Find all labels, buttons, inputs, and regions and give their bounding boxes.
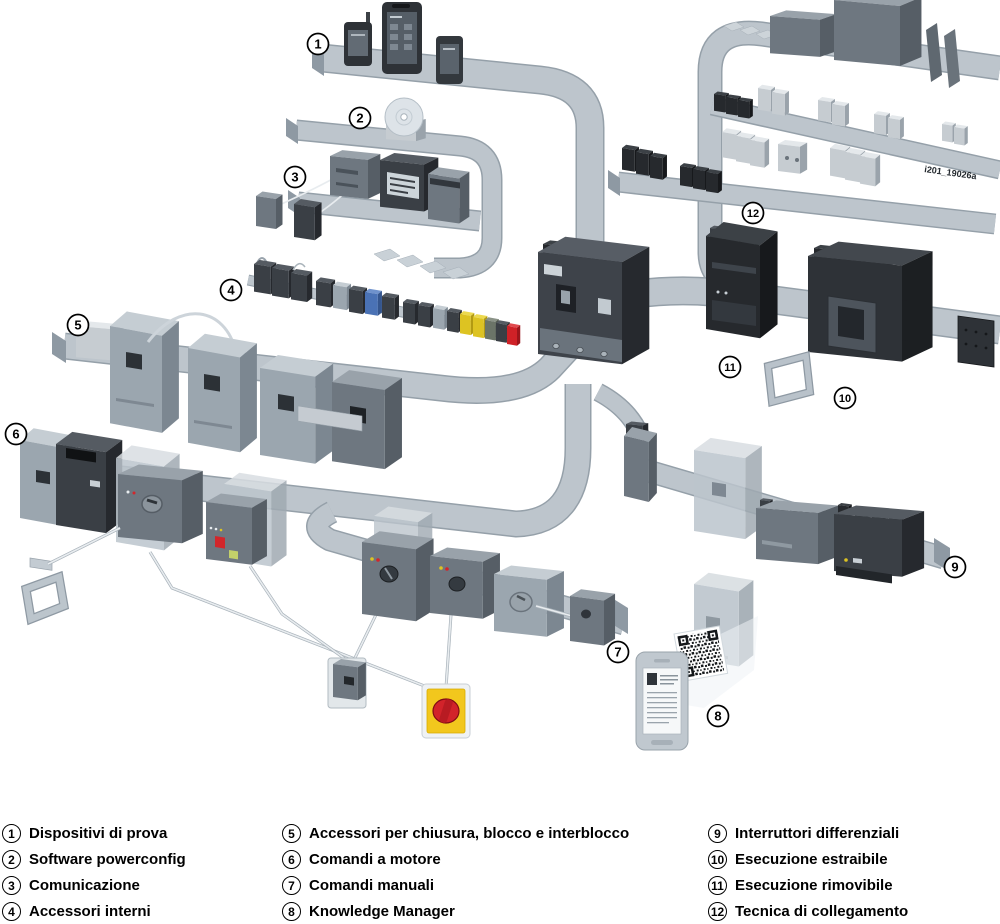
callout-6: 6	[6, 424, 27, 445]
svg-text:1: 1	[314, 37, 321, 52]
svg-text:7: 7	[614, 645, 621, 660]
legend-item-11: 11 Esecuzione rimovibile	[708, 876, 908, 895]
callout-12: 12	[743, 203, 764, 224]
legend-label: Accessori per chiusura, blocco e interbl…	[309, 825, 629, 842]
terminal-cover-large	[834, 0, 921, 66]
svg-text:11: 11	[724, 362, 736, 374]
com-module-small	[256, 192, 283, 230]
smartphone	[636, 652, 688, 750]
cluster-withdrawable-version	[768, 242, 994, 402]
rcd-module	[756, 500, 838, 564]
rcd-vertical-accessory	[624, 427, 657, 502]
isometric-diagram: 1 2 3 4 5 6 7 8 9 10 11 12 i201_19026a	[0, 0, 1000, 820]
cluster-powerconfig-disc	[385, 98, 426, 141]
breaker-with-lock	[188, 334, 257, 453]
legend-label: Comandi manuali	[309, 877, 434, 894]
breaker-with-lock	[110, 311, 179, 433]
ghost-breaker	[694, 438, 762, 539]
legend-number: 11	[708, 876, 727, 895]
legend-label: Esecuzione estraibile	[735, 851, 888, 868]
svg-text:12: 12	[747, 208, 759, 220]
svg-text:9: 9	[951, 560, 958, 575]
legend-item-10: 10 Esecuzione estraibile	[708, 850, 908, 869]
breaker-interlocked	[260, 355, 333, 464]
legend-item-7: 7 Comandi manuali	[282, 876, 629, 895]
legend-label: Tecnica di collegamento	[735, 903, 908, 920]
legend-label: Knowledge Manager	[309, 903, 455, 920]
lug-block	[778, 140, 807, 174]
legend-label: Comandi a motore	[309, 851, 441, 868]
legend-item-6: 6 Comandi a motore	[282, 850, 629, 869]
legend-number: 12	[708, 902, 727, 921]
com-module-small	[294, 199, 322, 240]
legend-number: 4	[2, 902, 21, 921]
svg-text:5: 5	[74, 318, 81, 333]
com-module-right	[428, 167, 469, 223]
phase-barrier	[926, 23, 942, 82]
main-circuit-breaker	[538, 237, 649, 365]
legend-label: Comunicazione	[29, 877, 140, 894]
cluster-plug-in-version	[706, 222, 778, 338]
svg-text:3: 3	[291, 170, 298, 185]
legend-column-3: 9 Interruttori differenziali 10 Esecuzio…	[708, 824, 908, 921]
rail-right-horizontal	[604, 291, 1000, 330]
legend-label: Interruttori differenziali	[735, 825, 899, 842]
svg-text:8: 8	[714, 709, 721, 724]
callout-10: 10	[835, 388, 856, 409]
callout-3: 3	[285, 167, 306, 188]
cluster-connection-technology	[622, 0, 968, 193]
callout-11: 11	[720, 357, 741, 378]
motor-operator	[56, 432, 122, 533]
legend-item-2: 2 Software powerconfig	[2, 850, 186, 869]
callout-9: 9	[945, 557, 966, 578]
callout-5: 5	[68, 315, 89, 336]
cluster-locking-accessories	[76, 311, 402, 469]
cluster-rcd	[624, 421, 924, 583]
door-handle-gray	[328, 658, 366, 708]
legend-number: 8	[282, 902, 301, 921]
svg-text:4: 4	[227, 283, 235, 298]
callout-1: 1	[308, 34, 329, 55]
rail-top-right-bottom-shelf	[618, 182, 995, 224]
cluster-knowledge-manager	[636, 573, 758, 750]
legend-label: Dispositivi di prova	[29, 825, 167, 842]
callout-2: 2	[350, 108, 371, 129]
door-coupling-operator	[570, 589, 615, 645]
legend-number: 7	[282, 876, 301, 895]
callout-7: 7	[608, 642, 629, 663]
legend-number: 9	[708, 824, 727, 843]
legend-number: 1	[2, 824, 21, 843]
callout-4: 4	[221, 280, 242, 301]
legend-label: Software powerconfig	[29, 851, 186, 868]
legend-column-2: 5 Accessori per chiusura, blocco e inter…	[282, 824, 629, 921]
legend-column-1: 1 Dispositivi di prova 2 Software powerc…	[2, 824, 186, 921]
legend-label: Accessori interni	[29, 903, 151, 920]
phase-barrier	[944, 29, 960, 88]
legend-item-8: 8 Knowledge Manager	[282, 902, 629, 921]
legend-number: 2	[2, 850, 21, 869]
legend-item-5: 5 Accessori per chiusura, blocco e inter…	[282, 824, 629, 843]
mounting-plate	[958, 316, 994, 367]
svg-text:10: 10	[839, 393, 851, 405]
legend-number: 10	[708, 850, 727, 869]
legend-number: 5	[282, 824, 301, 843]
terminal-cover-small	[770, 10, 836, 57]
legend-item-3: 3 Comunicazione	[2, 876, 186, 895]
rcd-complete	[834, 505, 924, 576]
red-button	[215, 536, 225, 549]
svg-text:6: 6	[12, 427, 19, 442]
callout-8: 8	[708, 706, 729, 727]
legend-number: 3	[2, 876, 21, 895]
legend-item-1: 1 Dispositivi di prova	[2, 824, 186, 843]
legend-item-12: 12 Tecnica di collegamento	[708, 902, 908, 921]
svg-text:2: 2	[356, 111, 363, 126]
door-handle-emergency	[422, 684, 470, 738]
product-overview-figure: 1 2 3 4 5 6 7 8 9 10 11 12 i201_19026a 1…	[0, 0, 1000, 924]
legend-item-9: 9 Interruttori differenziali	[708, 824, 908, 843]
legend-item-4: 4 Accessori interni	[2, 902, 186, 921]
legend-label: Esecuzione rimovibile	[735, 877, 893, 894]
legend-number: 6	[282, 850, 301, 869]
cluster-motor-operators	[20, 428, 287, 619]
green-label	[229, 550, 238, 559]
